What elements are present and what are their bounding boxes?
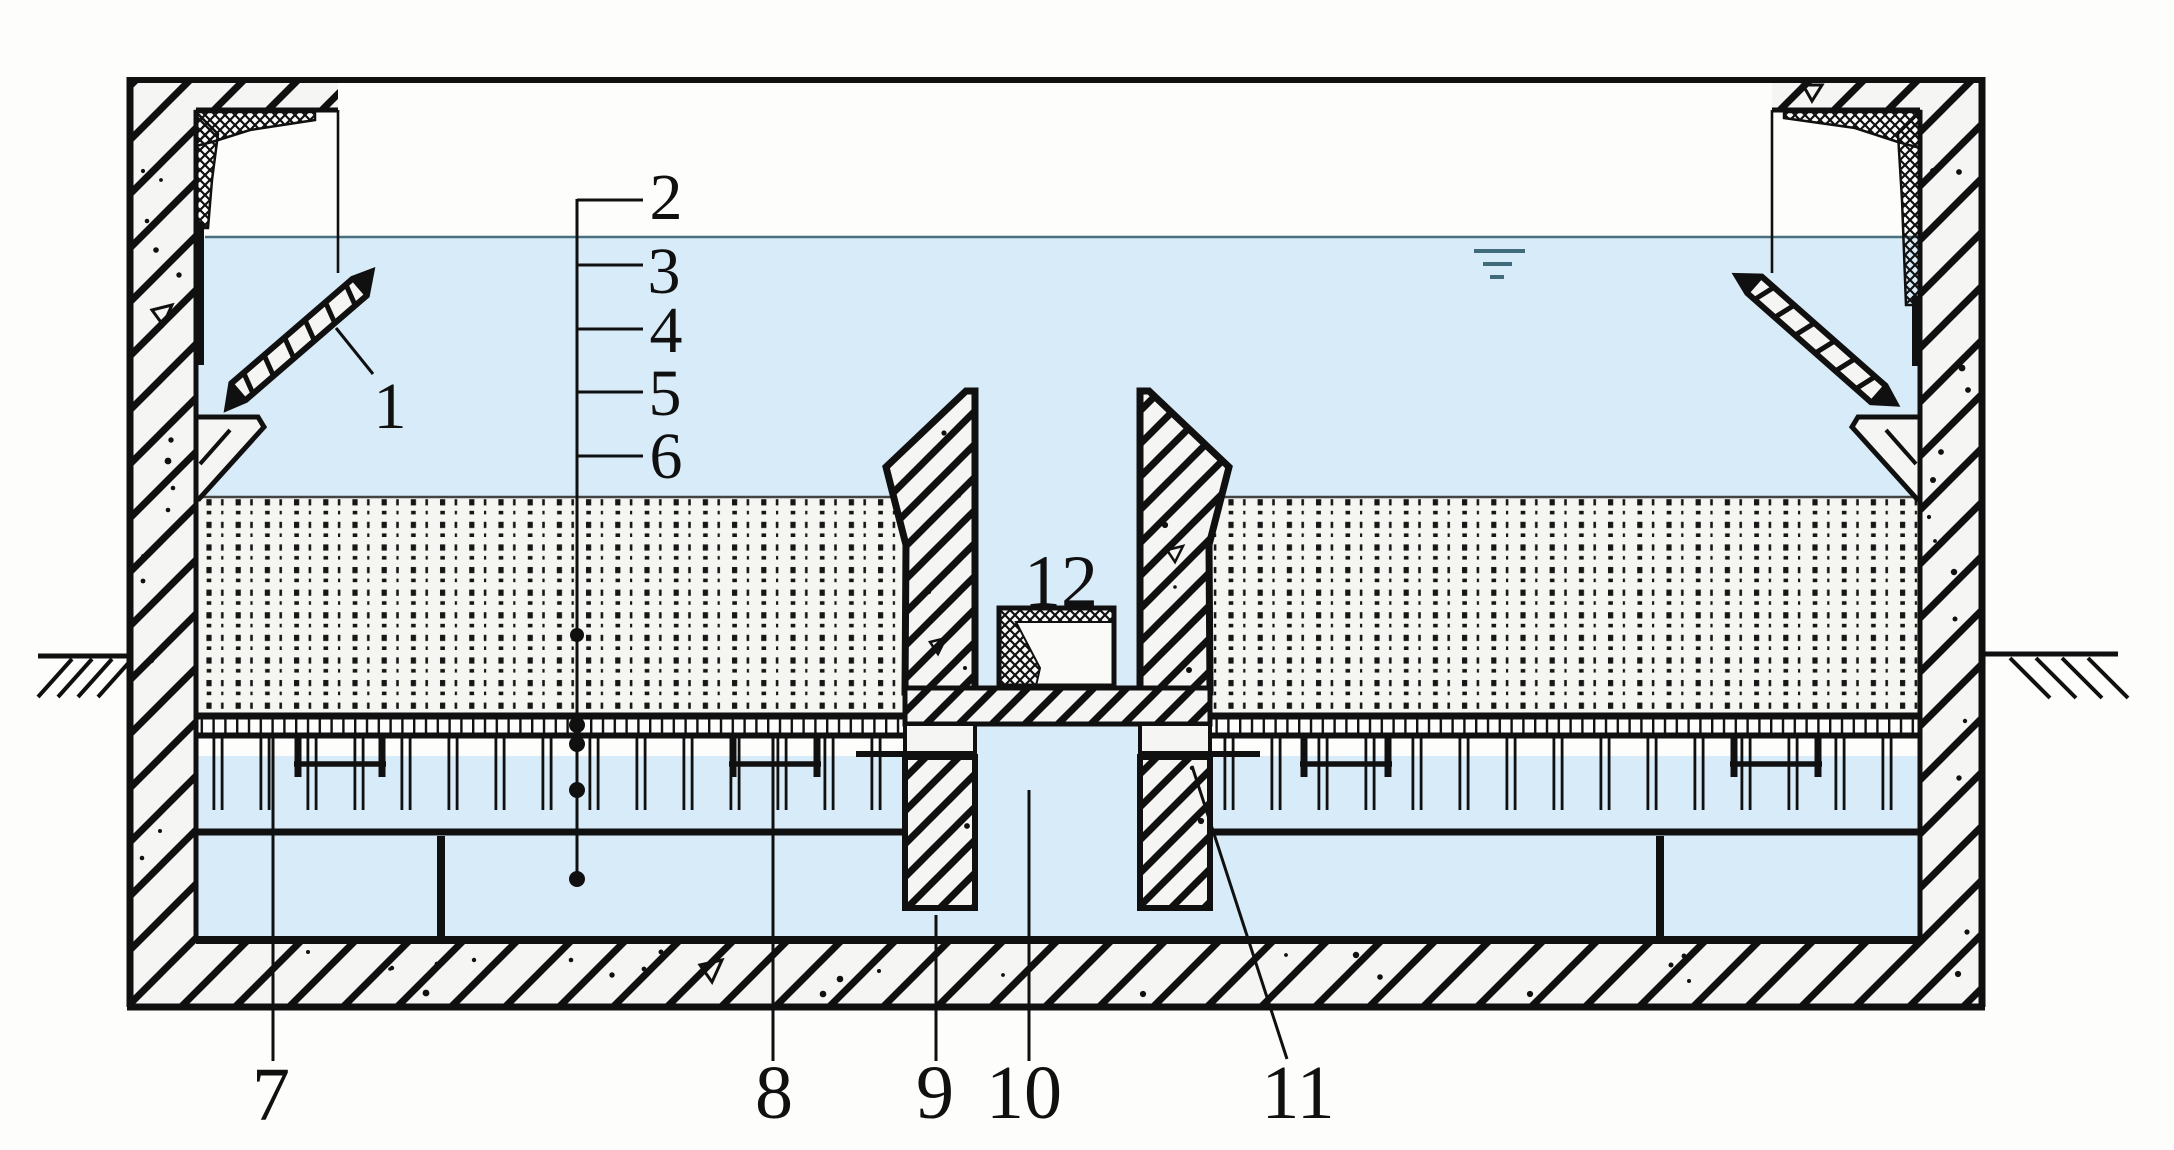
svg-text:7: 7 xyxy=(252,1053,290,1137)
svg-text:1: 1 xyxy=(374,370,407,443)
svg-text:11: 11 xyxy=(1261,1051,1334,1135)
svg-text:8: 8 xyxy=(755,1051,793,1135)
svg-text:9: 9 xyxy=(916,1051,954,1135)
svg-text:10: 10 xyxy=(986,1051,1062,1135)
svg-text:2: 2 xyxy=(650,161,683,234)
svg-text:12: 12 xyxy=(1024,541,1098,623)
svg-text:6: 6 xyxy=(650,420,683,493)
